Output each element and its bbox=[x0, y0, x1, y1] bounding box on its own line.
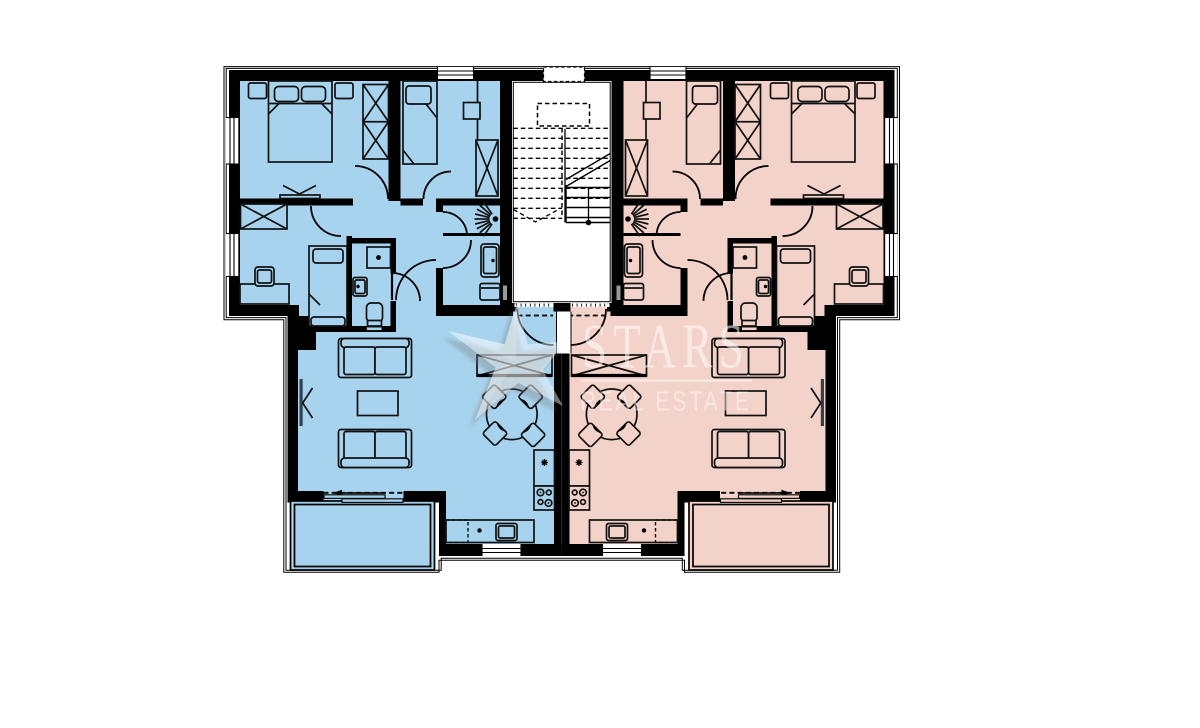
svg-text:REAL ESTATE: REAL ESTATE bbox=[581, 385, 753, 416]
svg-text:STARS: STARS bbox=[582, 311, 750, 382]
